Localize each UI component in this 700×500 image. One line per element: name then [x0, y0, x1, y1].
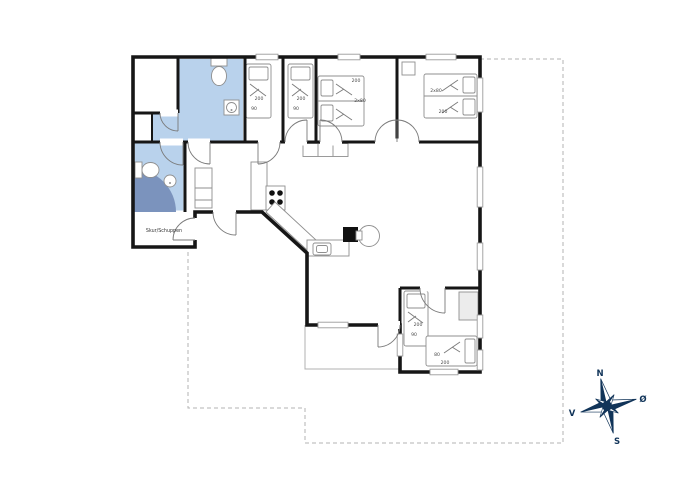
window	[430, 369, 458, 375]
pillow	[463, 99, 475, 115]
pillow	[249, 67, 268, 80]
terrace-outline	[305, 325, 400, 369]
bedroom-2: 200 90	[288, 64, 313, 118]
window	[477, 243, 483, 270]
bedroom-3: 200 2x80	[318, 76, 366, 126]
pillow	[407, 294, 425, 308]
bed-length-label: 200	[255, 96, 264, 102]
burner	[277, 190, 283, 196]
bed-width-label: 90	[251, 106, 257, 112]
shed-label: Skur/Schuppen	[146, 228, 182, 234]
window	[397, 334, 403, 356]
burner	[277, 199, 283, 205]
pillow	[321, 105, 333, 121]
pillow	[463, 77, 475, 93]
bed-length-label: 200	[414, 322, 423, 328]
toilet-tank	[211, 58, 227, 66]
kitchen-sink-basin	[317, 246, 328, 253]
toilet2-tank	[135, 162, 142, 178]
toilet-bowl	[212, 67, 227, 86]
compass-east-label: Ø	[639, 394, 646, 405]
stove-flue	[356, 231, 362, 240]
window	[318, 322, 348, 328]
shed: Skur/Schuppen	[146, 228, 182, 234]
bed-width-label: 90	[293, 106, 299, 112]
compass-rose: N Ø S V	[569, 369, 647, 447]
window	[477, 167, 483, 207]
window	[477, 315, 483, 338]
sink2-drain	[169, 182, 171, 184]
kitchen-counter-vertical	[251, 162, 267, 210]
floor-plan-page: 200 90 200 90 200 2x80 2x80 200 200 90	[0, 0, 700, 500]
compass-west-label: V	[569, 409, 576, 419]
compass-north-label: N	[596, 369, 603, 379]
kitchen	[251, 162, 349, 256]
window	[426, 54, 456, 60]
sink-drain	[231, 109, 233, 111]
bedroom-1: 200 90	[246, 64, 271, 118]
bed-width-label: 80	[434, 352, 440, 358]
annex-bedroom: 200 90 80 200	[404, 291, 478, 366]
annex-wardrobe	[459, 292, 478, 320]
window	[477, 350, 483, 370]
window	[256, 54, 278, 60]
bedroom-4: 2x80 200	[402, 62, 477, 118]
pillow	[465, 339, 475, 363]
burner	[269, 190, 275, 196]
compass-star	[574, 372, 642, 439]
window	[477, 78, 483, 112]
window	[338, 54, 360, 60]
toilet2-bowl	[142, 163, 159, 178]
bed-width-label: 90	[411, 332, 417, 338]
bed-length-label: 200	[352, 78, 361, 84]
sink2-basin	[164, 175, 176, 187]
terrace	[305, 325, 400, 369]
nightstand	[402, 62, 415, 75]
bed-width-label: 2x80	[430, 88, 442, 94]
bed-length-label: 200	[441, 360, 450, 366]
floor-plan-svg: 200 90 200 90 200 2x80 2x80 200 200 90	[0, 0, 700, 500]
bed-width-label: 2x80	[354, 98, 366, 104]
door-openings	[160, 110, 445, 330]
bed-length-label: 200	[439, 109, 448, 115]
pillow	[291, 67, 310, 80]
bed-length-label: 200	[297, 96, 306, 102]
pillow	[321, 80, 333, 96]
compass-south-label: S	[614, 437, 620, 447]
